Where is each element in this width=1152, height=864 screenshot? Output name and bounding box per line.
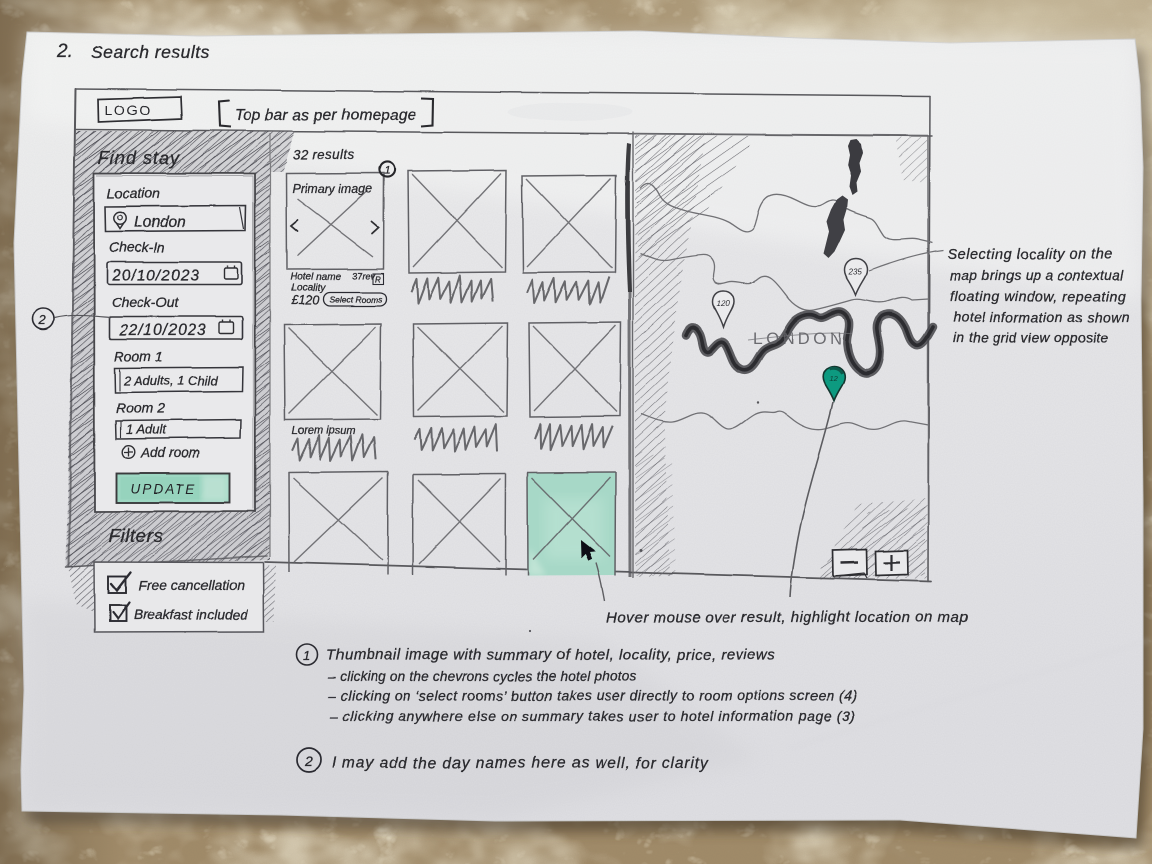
svg-text:R: R xyxy=(375,275,381,284)
svg-text:Primary image: Primary image xyxy=(292,182,373,196)
svg-text:Search results: Search results xyxy=(91,42,210,62)
svg-text:£120: £120 xyxy=(290,294,319,308)
svg-text:1: 1 xyxy=(385,165,391,177)
svg-text:20/10/2023: 20/10/2023 xyxy=(111,268,200,285)
svg-text:London: London xyxy=(134,214,186,231)
svg-text:– clicking on ‘select rooms’ b: – clicking on ‘select rooms’ button take… xyxy=(327,688,857,704)
svg-text:1 Adult: 1 Adult xyxy=(126,422,167,437)
svg-text:Selecting locality on the: Selecting locality on the xyxy=(948,247,1113,263)
svg-text:– clicking anywhere else on su: – clicking anywhere else on summary take… xyxy=(329,708,856,724)
svg-text:floating window, repeating: floating window, repeating xyxy=(950,289,1126,305)
svg-text:Thumbnail image with summary o: Thumbnail image with summary of hotel, l… xyxy=(326,647,776,664)
svg-text:2.: 2. xyxy=(56,41,73,62)
svg-text:2 Adults, 1 Child: 2 Adults, 1 Child xyxy=(123,373,219,388)
svg-text:Top bar as per homepage: Top bar as per homepage xyxy=(234,107,417,124)
svg-text:37rev: 37rev xyxy=(352,271,375,281)
svg-text:2: 2 xyxy=(304,753,313,769)
svg-text:22/10/2023: 22/10/2023 xyxy=(118,322,207,339)
svg-text:Lorem ipsum: Lorem ipsum xyxy=(292,425,356,437)
svg-text:Select Rooms: Select Rooms xyxy=(329,295,383,305)
svg-text:Breakfast included: Breakfast included xyxy=(134,608,249,623)
svg-text:Hover mouse over result, highl: Hover mouse over result, highlight locat… xyxy=(606,609,969,626)
svg-text:2: 2 xyxy=(38,313,47,328)
svg-text:Room 2: Room 2 xyxy=(116,400,165,416)
svg-text:map brings up a contextual: map brings up a contextual xyxy=(950,268,1124,283)
svg-text:120: 120 xyxy=(717,299,731,308)
svg-text:Find stay: Find stay xyxy=(98,148,180,168)
svg-text:Filters: Filters xyxy=(109,525,163,546)
svg-text:Hotel name: Hotel name xyxy=(290,272,342,283)
svg-text:Check-In: Check-In xyxy=(109,239,165,255)
svg-text:Free cancellation: Free cancellation xyxy=(139,578,244,593)
svg-text:32 results: 32 results xyxy=(293,147,355,162)
svg-text:LOGO: LOGO xyxy=(105,102,152,118)
svg-text:Location: Location xyxy=(107,185,160,201)
svg-text:235: 235 xyxy=(848,268,863,277)
svg-text:hotel information as shown: hotel information as shown xyxy=(953,309,1130,325)
svg-text:Locality: Locality xyxy=(291,283,326,294)
svg-text:12: 12 xyxy=(829,374,838,383)
svg-text:Room 1: Room 1 xyxy=(114,348,163,364)
svg-text:1: 1 xyxy=(304,648,311,663)
svg-text:UPDATE: UPDATE xyxy=(130,482,196,497)
svg-text:Add room: Add room xyxy=(140,446,200,461)
svg-text:I may add the day names here a: I may add the day names here as well, fo… xyxy=(332,755,709,772)
svg-text:in the grid view opposite: in the grid view opposite xyxy=(953,331,1109,346)
svg-text:– clicking on the chevrons cyc: – clicking on the chevrons cycles the ho… xyxy=(327,669,636,684)
svg-text:Check-Out: Check-Out xyxy=(111,294,179,310)
